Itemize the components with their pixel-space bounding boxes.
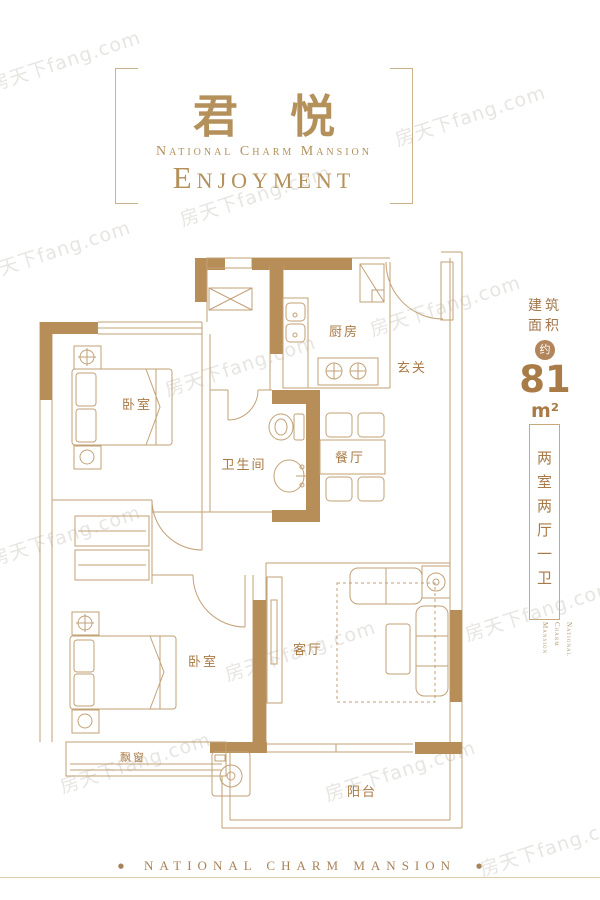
kitchen-sink-icon: [283, 298, 308, 388]
layout-summary-box: 两室两厅一卫: [529, 424, 560, 620]
stove-icon: [318, 358, 378, 385]
watermark-text: 房天下fang.com: [391, 78, 549, 152]
room-label-entry: 玄关: [397, 361, 427, 376]
brand-vertical: National Charm Mansion: [518, 622, 574, 678]
room-label-kitchen: 厨房: [329, 324, 359, 340]
room-label-living: 客厅: [293, 642, 323, 658]
floorplan-page: 房天下fang.com 房天下fang.com 房天下fang.com 房天下f…: [0, 0, 600, 900]
footer-brand: ● NATIONAL CHARM MANSION ●: [0, 858, 600, 874]
area-label-line1: 建筑: [523, 296, 567, 316]
room-label-bedroom-second: 卧室: [188, 654, 218, 670]
footer-bullet-left: ●: [118, 862, 124, 870]
room-label-bedroom-main: 卧室: [122, 397, 152, 413]
floorplan-drawing: 卧室 厨房 玄关 卫生间 餐厅 客厅 卧室 飘窗 阳台: [35, 250, 515, 842]
header: 君悦 National Charm Mansion Enjoyment: [115, 66, 413, 206]
area-label-line2: 面积: [523, 316, 567, 336]
bay-window-icon: [66, 742, 226, 776]
wardrobe-icon: [75, 516, 149, 580]
area-label: 建筑 面积: [523, 296, 567, 336]
room-label-balcony: 阳台: [347, 785, 377, 800]
room-label-dining: 餐厅: [335, 450, 365, 466]
area-unit: m²: [519, 400, 571, 422]
footer-brand-text: NATIONAL CHARM MANSION: [144, 858, 456, 874]
footer-bullet-right: ●: [476, 862, 482, 870]
page-title: 君悦: [115, 80, 413, 145]
entry-cabinet-icon: [209, 288, 252, 310]
bed-second-icon: [70, 612, 176, 733]
washing-machine-icon: [212, 752, 250, 796]
room-label-bay-window: 飘窗: [120, 750, 146, 764]
page-subtitle: National Charm Mansion: [115, 144, 413, 160]
approx-badge: 约: [535, 340, 555, 360]
area-value: 81: [519, 358, 571, 401]
layout-summary: 两室两厅一卫: [534, 450, 555, 594]
tv-cabinet-icon: [267, 577, 282, 703]
footer-divider-line: [0, 877, 600, 878]
toilet-icon: [269, 414, 304, 440]
room-label-bathroom: 卫生间: [221, 458, 266, 473]
sofa-icon: [337, 566, 450, 702]
kitchen-flue-icon: [360, 264, 384, 302]
washbasin-icon: [274, 460, 306, 492]
page-title-english: Enjoyment: [115, 160, 413, 196]
